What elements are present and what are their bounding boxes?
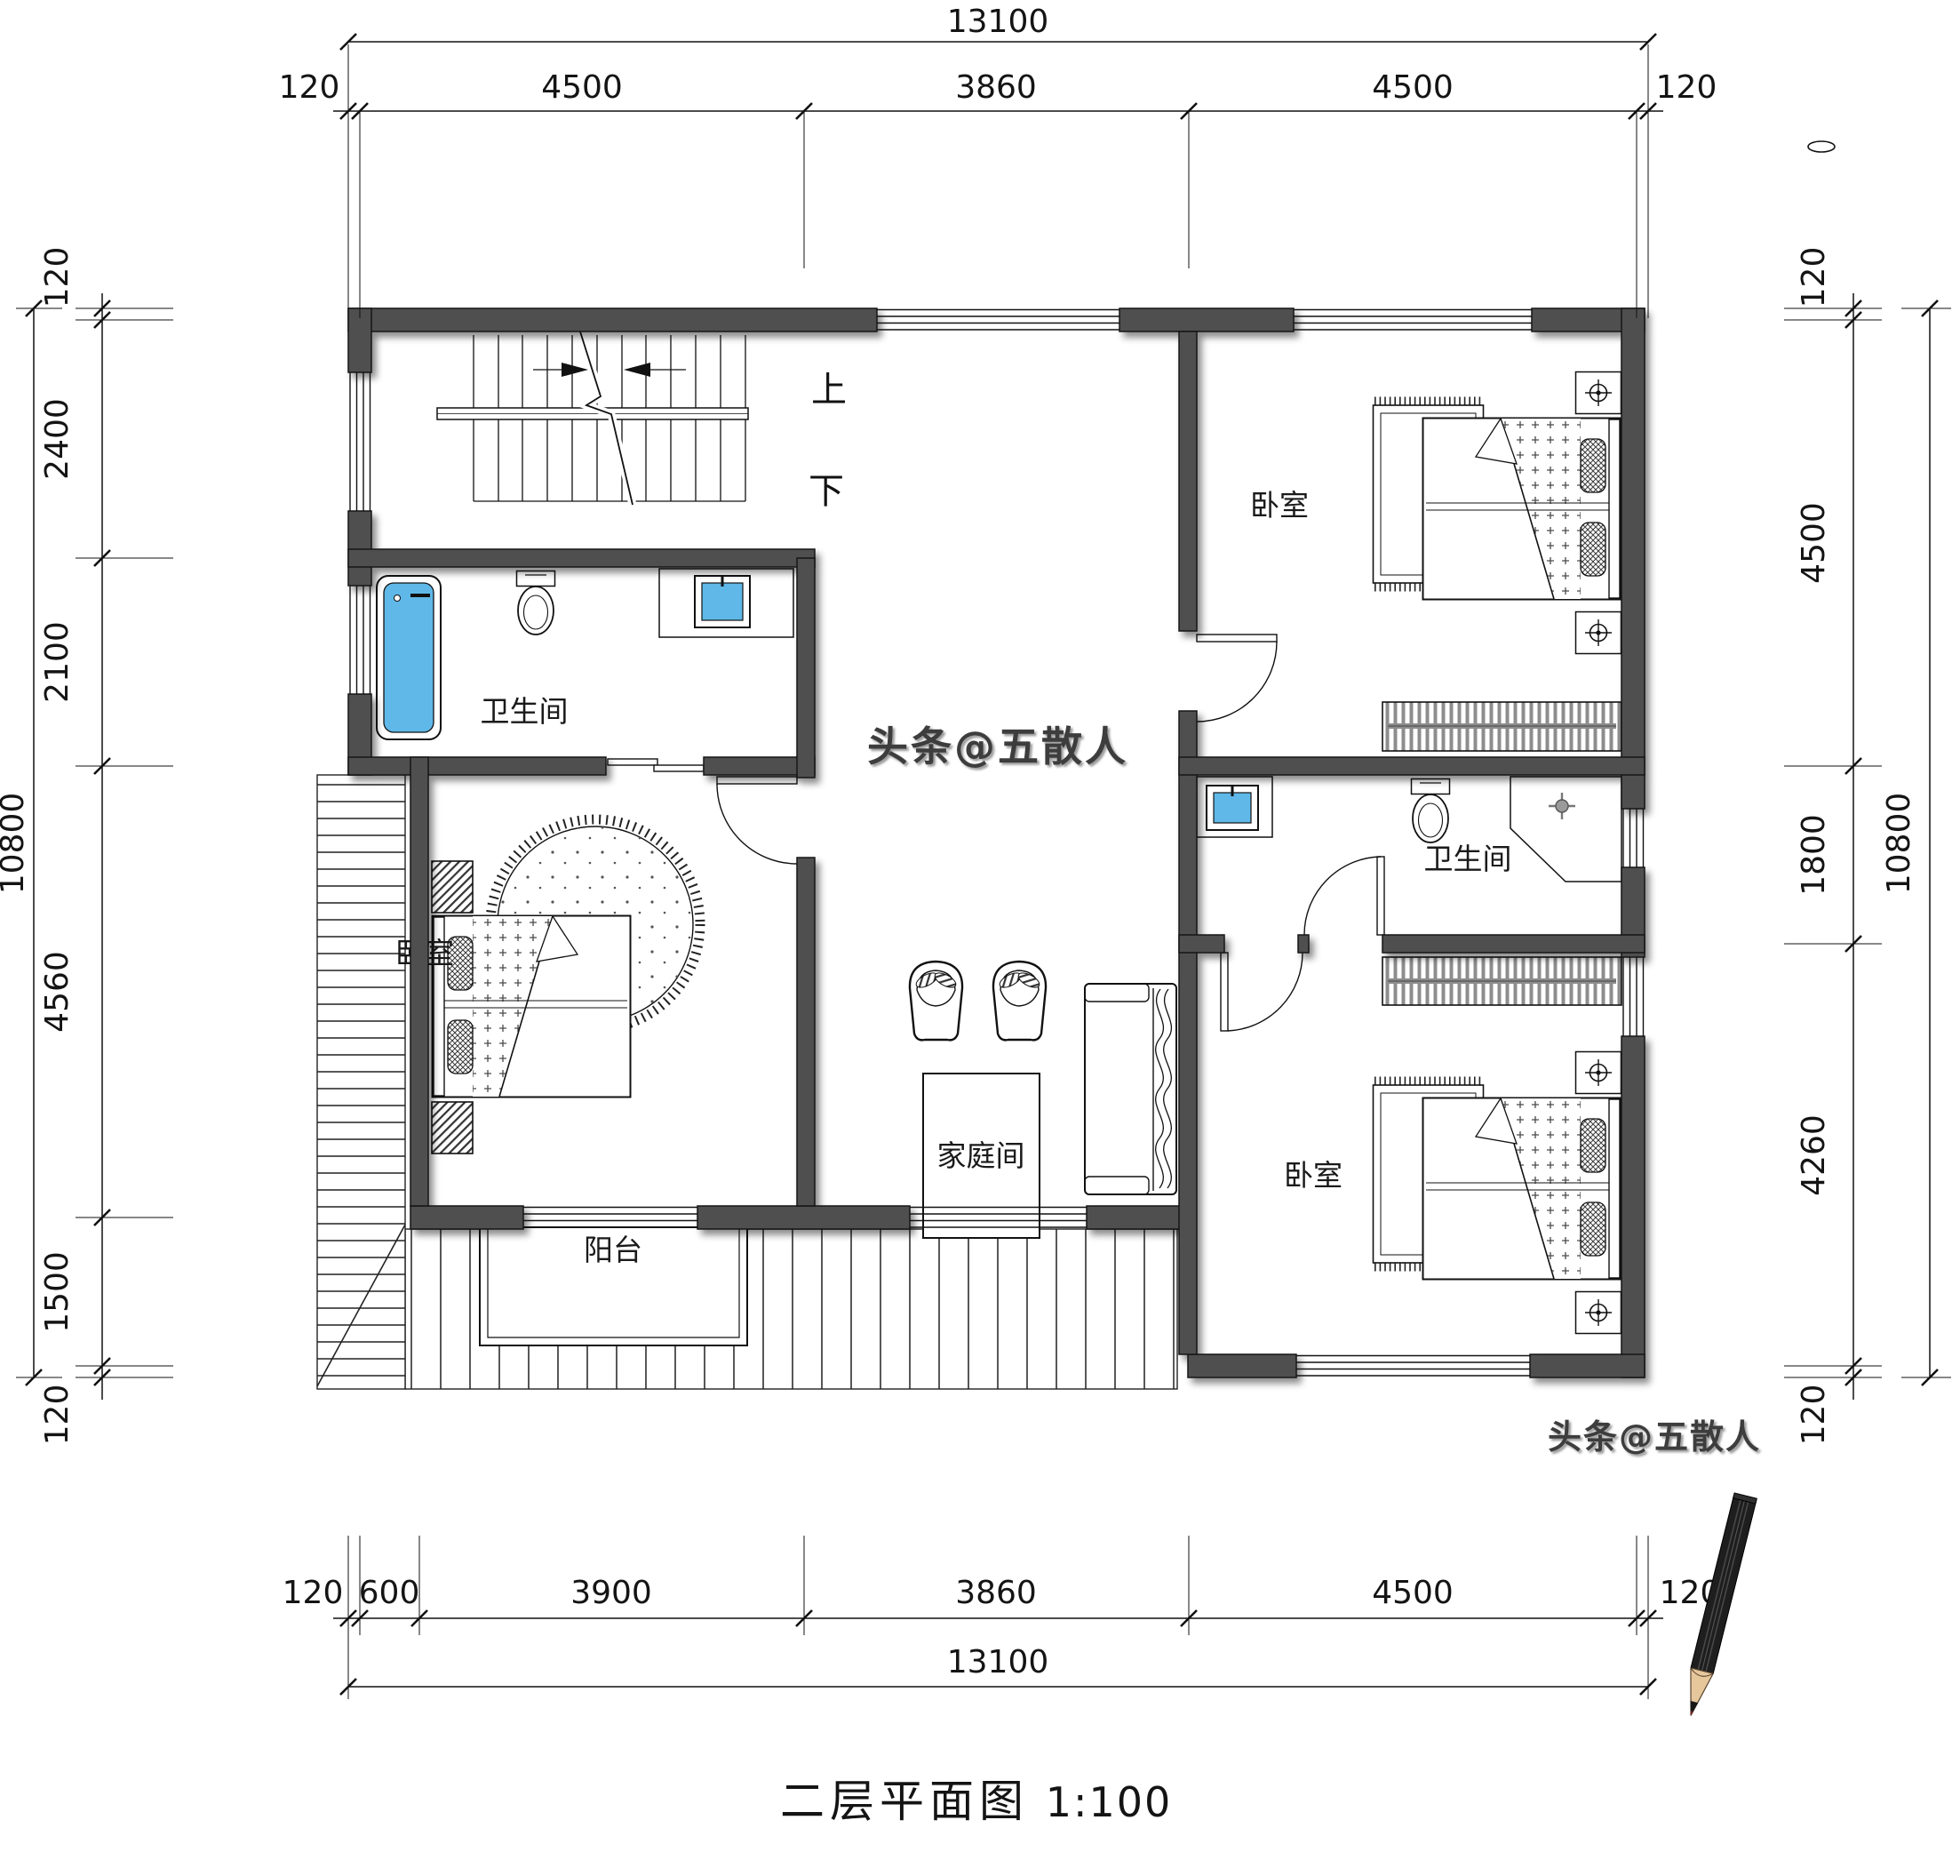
dimension-labels-left: 120 2400 2100 4560 1500 120 10800 xyxy=(0,247,76,1446)
watermark-center: 头条@五散人 xyxy=(867,722,1128,770)
nightstand xyxy=(432,1102,473,1154)
drawing-title: 二层平面图 1:100 xyxy=(780,1776,1172,1827)
window-bedroom-br-bottom xyxy=(1296,1356,1530,1377)
window-balcony-door xyxy=(523,1208,697,1228)
stair-down-label: 下 xyxy=(809,471,844,512)
exterior-stair-strip xyxy=(317,775,405,1389)
vanity-sink xyxy=(1197,777,1272,837)
title-scale: 1:100 xyxy=(1046,1778,1173,1826)
bathroom-left: 卫生间 xyxy=(377,569,793,739)
bedroom-left: 卧室 xyxy=(395,819,700,1154)
floor-plan-svg: 阳台 上 下 卫生间 卧室 家庭间 xyxy=(0,0,1960,1876)
staircase xyxy=(437,329,748,505)
dim: 3860 xyxy=(955,1575,1037,1611)
armchair xyxy=(993,962,1046,1040)
dimension-labels-top: 13100 120 4500 3860 4500 120 xyxy=(279,4,1717,106)
family-room-label: 家庭间 xyxy=(937,1138,1025,1173)
small-ellipse-mark xyxy=(1808,141,1835,152)
wardrobe xyxy=(1382,957,1621,1005)
armchair xyxy=(910,962,962,1040)
dim: 120 xyxy=(1796,247,1832,308)
stair-break-arrows xyxy=(533,363,686,377)
vanity-sink xyxy=(659,569,793,637)
coffee-table: 家庭间 xyxy=(923,1074,1040,1238)
bathroom-right-label: 卫生间 xyxy=(1424,842,1512,876)
dim-left-overall: 10800 xyxy=(0,793,31,895)
nightstand-lamp-icon xyxy=(1576,1292,1621,1334)
nightstand-lamp-icon xyxy=(1576,372,1621,414)
double-bed xyxy=(433,916,631,1098)
dim-top-overall: 13100 xyxy=(947,4,1049,40)
dim: 4560 xyxy=(39,951,76,1033)
dim: 1800 xyxy=(1796,814,1832,896)
double-bed xyxy=(1423,1098,1621,1280)
dim: 4500 xyxy=(541,69,623,106)
dim: 120 xyxy=(1796,1385,1832,1446)
family-room: 家庭间 xyxy=(910,962,1176,1238)
window-bedroom-br-right xyxy=(1623,957,1644,1036)
dim: 120 xyxy=(279,69,340,106)
double-bed xyxy=(1423,419,1621,600)
window-bath-right xyxy=(1623,809,1644,867)
door-bedroom-left xyxy=(717,777,797,864)
bathroom-left-label: 卫生间 xyxy=(481,694,569,729)
bedroom-top-right: 卧室 xyxy=(1250,372,1621,752)
dim: 4500 xyxy=(1372,1575,1454,1611)
dim: 3900 xyxy=(570,1575,652,1611)
window-hall-top xyxy=(877,310,1119,331)
dim: 4500 xyxy=(1372,69,1454,106)
nightstand-lamp-icon xyxy=(1576,1052,1621,1094)
shower xyxy=(1510,777,1621,882)
toilet-icon xyxy=(517,571,555,635)
toilet-icon xyxy=(1412,779,1450,843)
dimension-labels-bottom: 120 600 3900 3860 4500 120 13100 xyxy=(283,1575,1721,1680)
window-stair-left xyxy=(350,372,370,511)
dim: 120 xyxy=(39,1385,76,1446)
window-bedroom-tr-top xyxy=(1294,310,1532,331)
nightstand-lamp-icon xyxy=(1576,612,1621,654)
sliding-door-bathroom-left xyxy=(608,759,704,771)
dim: 4500 xyxy=(1796,502,1832,584)
nightstand xyxy=(432,861,473,913)
dim: 3860 xyxy=(955,69,1037,106)
sofa xyxy=(1085,984,1176,1194)
bathtub xyxy=(377,576,441,739)
dim: 1500 xyxy=(39,1251,76,1333)
dim-right-overall: 10800 xyxy=(1881,793,1917,895)
bedroom-bottom-right: 卧室 xyxy=(1284,957,1621,1334)
dim: 120 xyxy=(283,1575,344,1611)
dim: 120 xyxy=(39,247,76,308)
bedroom-top-right-label: 卧室 xyxy=(1250,488,1309,523)
bedroom-bottom-right-label: 卧室 xyxy=(1284,1158,1343,1193)
window-bath-left xyxy=(350,586,370,694)
dim: 2400 xyxy=(39,398,76,480)
title-text: 二层平面图 xyxy=(780,1776,1029,1827)
dimension-labels-right: 120 4500 1800 4260 120 10800 xyxy=(1796,247,1917,1446)
wardrobe xyxy=(1382,702,1621,751)
stair-up-label: 上 xyxy=(811,370,847,411)
floor-plan-page: 阳台 上 下 卫生间 卧室 家庭间 xyxy=(0,0,1960,1876)
dim: 4260 xyxy=(1796,1114,1832,1196)
bathroom-right: 卫生间 xyxy=(1197,777,1621,882)
balcony: 阳台 xyxy=(480,1227,747,1345)
door-bedroom-bottom-right xyxy=(1221,953,1303,1031)
dim: 2100 xyxy=(39,621,76,703)
door-bedroom-top-right xyxy=(1197,635,1277,722)
watermark-corner: 头条@五散人 xyxy=(1548,1417,1761,1457)
balcony-label: 阳台 xyxy=(584,1233,642,1267)
dim-bottom-overall: 13100 xyxy=(947,1644,1049,1680)
dim: 120 xyxy=(1656,69,1717,106)
dim: 600 xyxy=(359,1575,420,1611)
door-bathroom-right xyxy=(1304,857,1384,935)
